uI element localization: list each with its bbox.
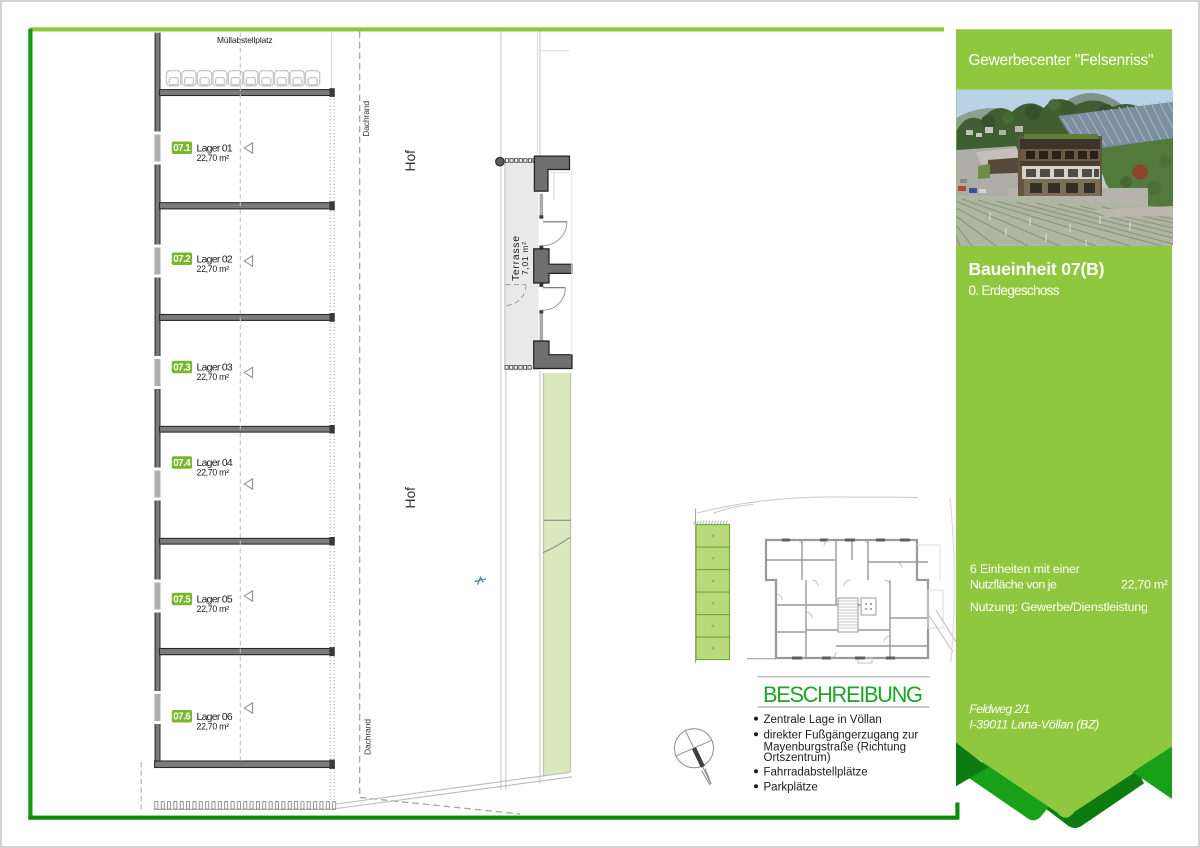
svg-text:07.6: 07.6 bbox=[173, 712, 191, 723]
svg-text:22,70 m²: 22,70 m² bbox=[197, 604, 230, 614]
svg-text:7,01 m²: 7,01 m² bbox=[520, 242, 530, 275]
svg-text:Ortszentrum): Ortszentrum) bbox=[764, 752, 831, 764]
svg-text:Müllabstellplatz: Müllabstellplatz bbox=[217, 35, 273, 45]
svg-text:direkter Fußgängerzugang zur: direkter Fußgängerzugang zur bbox=[764, 729, 919, 741]
svg-text:Gewerbecenter "Felsenriss": Gewerbecenter "Felsenriss" bbox=[969, 52, 1154, 69]
svg-text:Dachrand: Dachrand bbox=[361, 101, 371, 137]
svg-text:07.5: 07.5 bbox=[173, 594, 191, 605]
svg-text:Feldweg 2/1: Feldweg 2/1 bbox=[969, 702, 1030, 716]
svg-text:Dachrand: Dachrand bbox=[362, 719, 372, 755]
svg-text:07.3: 07.3 bbox=[173, 362, 191, 373]
svg-text:Nutzung: Gewerbe/Dienstleistun: Nutzung: Gewerbe/Dienstleistung bbox=[970, 600, 1148, 614]
svg-text:BESCHREIBUNG: BESCHREIBUNG bbox=[763, 682, 923, 707]
svg-text:22,70 m²: 22,70 m² bbox=[1121, 578, 1168, 592]
svg-text:Zentrale Lage in Völlan: Zentrale Lage in Völlan bbox=[764, 714, 882, 726]
svg-text:Baueinheit 07(B): Baueinheit 07(B) bbox=[969, 259, 1105, 279]
svg-text:07.1: 07.1 bbox=[173, 143, 191, 154]
svg-text:22,70 m²: 22,70 m² bbox=[197, 153, 230, 163]
svg-text:Hof: Hof bbox=[403, 487, 418, 509]
svg-text:I-39011 Lana-Völlan (BZ): I-39011 Lana-Völlan (BZ) bbox=[969, 718, 1099, 732]
svg-text:22,70 m²: 22,70 m² bbox=[197, 721, 230, 731]
svg-text:07.2: 07.2 bbox=[173, 254, 191, 265]
svg-text:0. Erdegeschoss: 0. Erdegeschoss bbox=[969, 283, 1060, 298]
svg-text:22,70 m²: 22,70 m² bbox=[197, 372, 230, 382]
svg-text:22,70 m²: 22,70 m² bbox=[197, 264, 230, 274]
svg-text:Parkplätze: Parkplätze bbox=[764, 781, 818, 793]
svg-text:6 Einheiten mit einer: 6 Einheiten mit einer bbox=[970, 562, 1080, 576]
svg-text:Hof: Hof bbox=[403, 150, 418, 172]
svg-text:22,70 m²: 22,70 m² bbox=[197, 468, 230, 478]
svg-text:07.4: 07.4 bbox=[173, 458, 191, 469]
svg-text:Fahrradabstellplätze: Fahrradabstellplätze bbox=[764, 766, 868, 778]
svg-text:Nutzfläche von je: Nutzfläche von je bbox=[970, 578, 1057, 592]
